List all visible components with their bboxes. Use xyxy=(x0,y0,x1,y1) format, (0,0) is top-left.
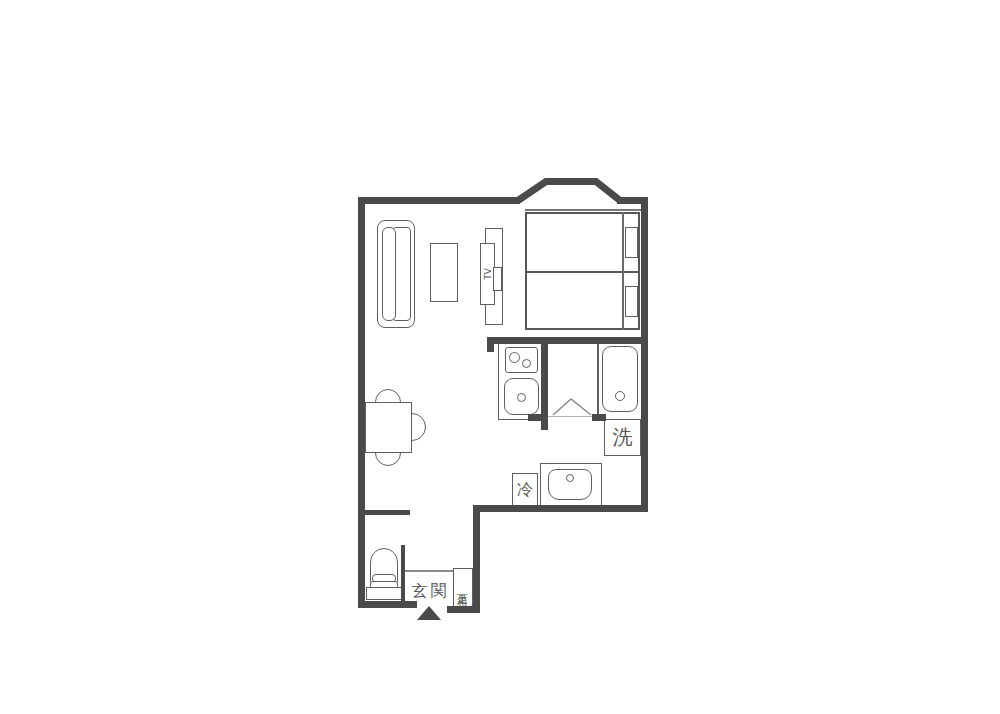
bathtub-drain xyxy=(615,391,625,401)
stove-burner-large xyxy=(509,352,520,363)
washing-machine-label: 洗 xyxy=(613,424,633,451)
tv-label: TV xyxy=(483,268,493,280)
wall-toilet-top-partition xyxy=(361,510,410,515)
wall-top-left xyxy=(358,197,520,204)
wall-toilet-right-partition xyxy=(401,545,405,601)
wall-left xyxy=(358,197,365,608)
wall-washroom-bottom-left xyxy=(528,414,548,421)
genkan-step-line xyxy=(405,570,453,572)
bathtub-icon xyxy=(602,346,638,412)
wall-genkan-right xyxy=(473,505,480,613)
shoe-cabinet: 下足箱 xyxy=(453,568,473,607)
tv-component-box xyxy=(493,267,502,291)
washbasin-faucet xyxy=(566,474,574,482)
wall-right xyxy=(641,197,648,512)
refrigerator-space: 冷 xyxy=(512,473,538,507)
sink-drain xyxy=(517,393,526,402)
floor-plan: TV 洗 冷 下足箱 玄関 xyxy=(0,0,1000,714)
entrance-label-box: 玄関 xyxy=(405,582,453,600)
bay-window-wall xyxy=(510,170,655,210)
entrance-arrow-icon xyxy=(417,606,441,620)
wall-bottom-left xyxy=(358,601,417,608)
stove-burner-small xyxy=(522,359,531,368)
bathroom-partition-line xyxy=(597,344,599,415)
shoe-cabinet-label: 下足箱 xyxy=(456,586,470,589)
refrigerator-label: 冷 xyxy=(517,480,533,501)
dining-table-icon xyxy=(365,402,412,453)
sofa-back xyxy=(382,227,396,321)
wall-bottom-genkan xyxy=(447,606,480,613)
door-threshold-line xyxy=(548,416,592,417)
toilet-base xyxy=(366,587,402,600)
entrance-label: 玄関 xyxy=(409,581,450,602)
wall-bedroom-kitchen-divider xyxy=(487,337,648,344)
wall-washroom-bottom-right xyxy=(592,414,606,421)
pillow-lower-icon xyxy=(625,286,638,317)
wall-bottom-right-section xyxy=(473,505,648,512)
pillow-upper-icon xyxy=(625,227,638,258)
washing-machine-space: 洗 xyxy=(604,419,641,456)
coffee-table-icon xyxy=(430,243,458,302)
door-swing-icon xyxy=(548,392,596,418)
wall-divider-stub xyxy=(487,337,494,352)
bed-headboard-line xyxy=(622,212,624,330)
